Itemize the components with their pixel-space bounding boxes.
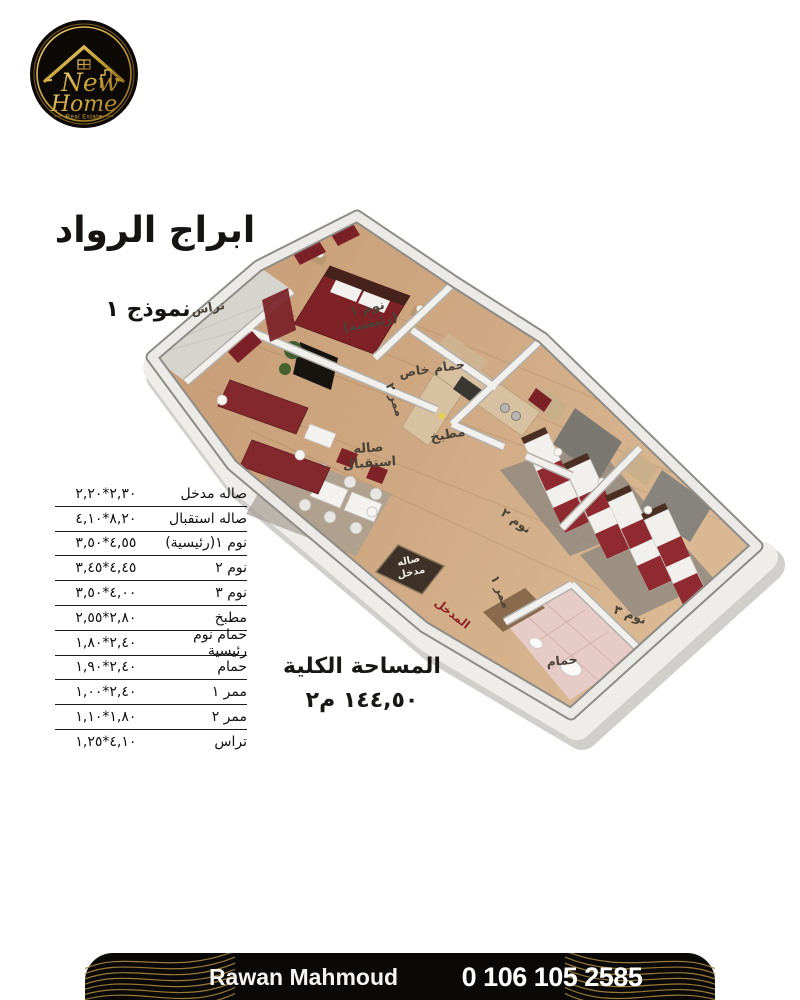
table-row: صاله مدخل ٢,٣٠*٢,٢٠ — [55, 482, 247, 507]
room-dims: ٤,١٠*١,٢٥ — [55, 734, 157, 750]
room-dims: ٢,٤٠*١,٠٠ — [55, 684, 157, 700]
table-row: نوم ١(رئيسية) ٤,٥٥*٣,٥٠ — [55, 532, 247, 557]
sink-bowl — [501, 404, 510, 413]
room-dims: ١,٨٠*١,١٠ — [55, 709, 157, 725]
table-row: تراس ٤,١٠*١,٢٥ — [55, 730, 247, 754]
room-name: صاله استقبال — [157, 511, 247, 527]
total-area: المساحة الكلية ١٤٤,٥٠ م٢ — [276, 650, 448, 718]
room-dims: ٨,٢٠*٤,١٠ — [55, 511, 157, 527]
room-dims: ٤,٤٥*٣,٤٥ — [55, 560, 157, 576]
room-name: نوم ١(رئيسية) — [157, 535, 247, 551]
room-name: نوم ٢ — [157, 560, 247, 576]
table-row: حمام ٢,٤٠*١,٩٠ — [55, 656, 247, 681]
room-name: ممر ٢ — [157, 709, 247, 725]
spec-table: صاله مدخل ٢,٣٠*٢,٢٠ صاله استقبال ٨,٢٠*٤,… — [55, 482, 247, 754]
kitchen-item — [439, 413, 445, 419]
total-area-label: المساحة الكلية — [276, 650, 448, 684]
table-row: ممر ١ ٢,٤٠*١,٠٠ — [55, 680, 247, 705]
room-name: مطبخ — [157, 610, 247, 626]
table-row: حمام نوم رئيسية ٢,٤٠*١,٨٠ — [55, 631, 247, 656]
room-name: صاله مدخل — [157, 486, 247, 502]
table-row: نوم ٣ ٤,٠٠*٣,٥٠ — [55, 581, 247, 606]
room-dims: ٢,٨٠*٢,٥٥ — [55, 610, 157, 626]
room-dims: ٤,٥٥*٣,٥٠ — [55, 535, 157, 551]
phone-number: 0 106 105 2585 — [437, 962, 667, 993]
table-row: نوم ٢ ٤,٤٥*٣,٤٥ — [55, 556, 247, 581]
room-dims: ٤,٠٠*٣,٥٠ — [55, 585, 157, 601]
agent-name: Rawan Mahmoud — [201, 964, 406, 991]
sink-bowl — [512, 412, 521, 421]
room-dims: ٢,٤٠*١,٩٠ — [55, 659, 157, 675]
flyer-page: New Home Real Estate ابراج الرواد نموذج … — [0, 0, 800, 1000]
room-name: ممر ١ — [157, 684, 247, 700]
total-area-value: ١٤٤,٥٠ م٢ — [276, 684, 448, 718]
room-name: حمام نوم رئيسية — [157, 627, 247, 659]
room-dims: ٢,٤٠*١,٨٠ — [55, 635, 157, 651]
plant — [279, 363, 291, 375]
room-name: تراس — [157, 734, 247, 750]
room-name: حمام — [157, 659, 247, 675]
table-row: صاله استقبال ٨,٢٠*٤,١٠ — [55, 507, 247, 532]
room-dims: ٢,٣٠*٢,٢٠ — [55, 486, 157, 502]
footer-bar: Rawan Mahmoud 0 106 105 2585 — [85, 953, 715, 1000]
table-row: ممر ٢ ١,٨٠*١,١٠ — [55, 705, 247, 730]
room-name: نوم ٣ — [157, 585, 247, 601]
